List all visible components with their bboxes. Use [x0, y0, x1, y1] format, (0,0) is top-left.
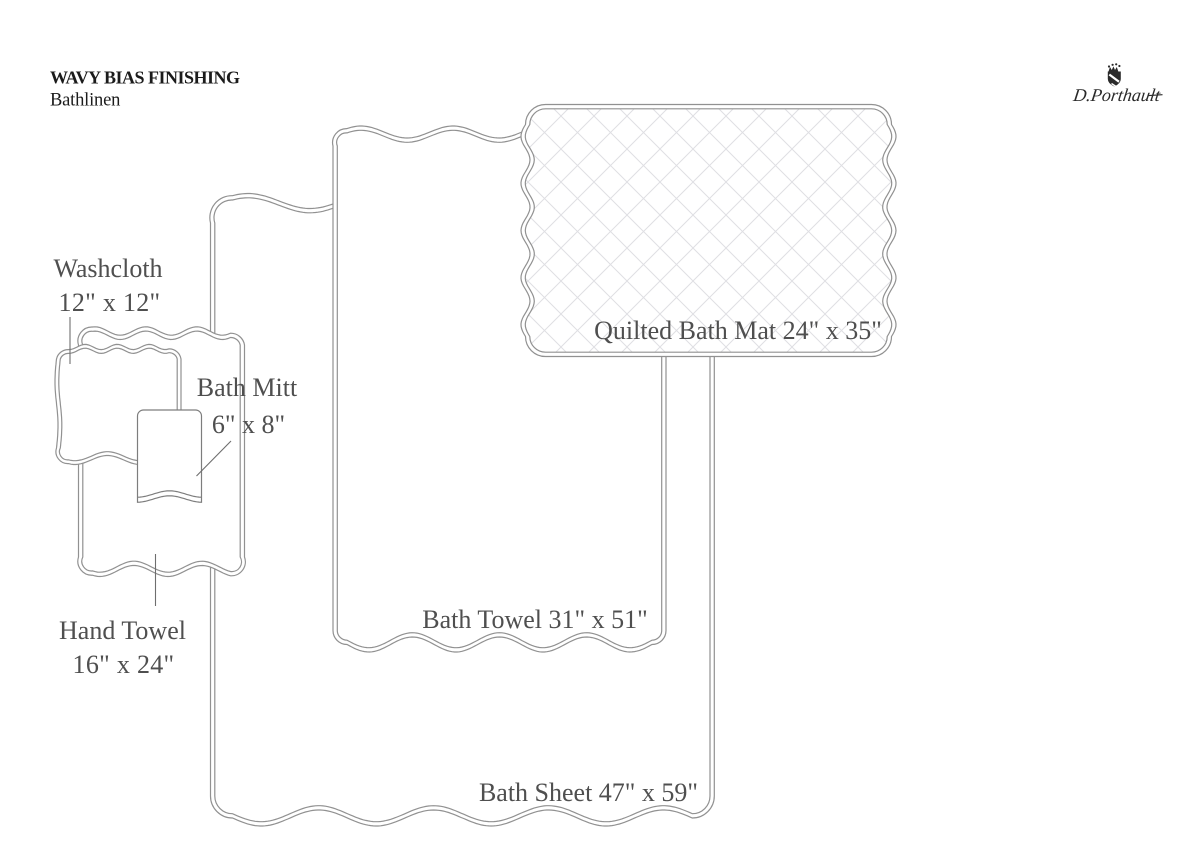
- svg-text:Bath Sheet 47" x 59": Bath Sheet 47" x 59": [479, 778, 698, 807]
- svg-text:6" x 8": 6" x 8": [212, 410, 285, 439]
- svg-text:Bath Mitt: Bath Mitt: [197, 373, 298, 402]
- svg-text:12" x 12": 12" x 12": [59, 288, 161, 317]
- svg-text:D.Porthault: D.Porthault: [1071, 85, 1162, 105]
- svg-text:Quilted Bath Mat 24" x 35": Quilted Bath Mat 24" x 35": [594, 316, 882, 345]
- svg-text:16" x 24": 16" x 24": [73, 650, 175, 679]
- svg-text:WAVY BIAS FINISHING: WAVY BIAS FINISHING: [50, 68, 240, 88]
- svg-text:Washcloth: Washcloth: [53, 254, 162, 283]
- svg-text:Bathlinen: Bathlinen: [50, 91, 120, 111]
- svg-text:Bath Towel 31" x 51": Bath Towel 31" x 51": [422, 605, 647, 634]
- svg-text:Hand Towel: Hand Towel: [59, 616, 186, 645]
